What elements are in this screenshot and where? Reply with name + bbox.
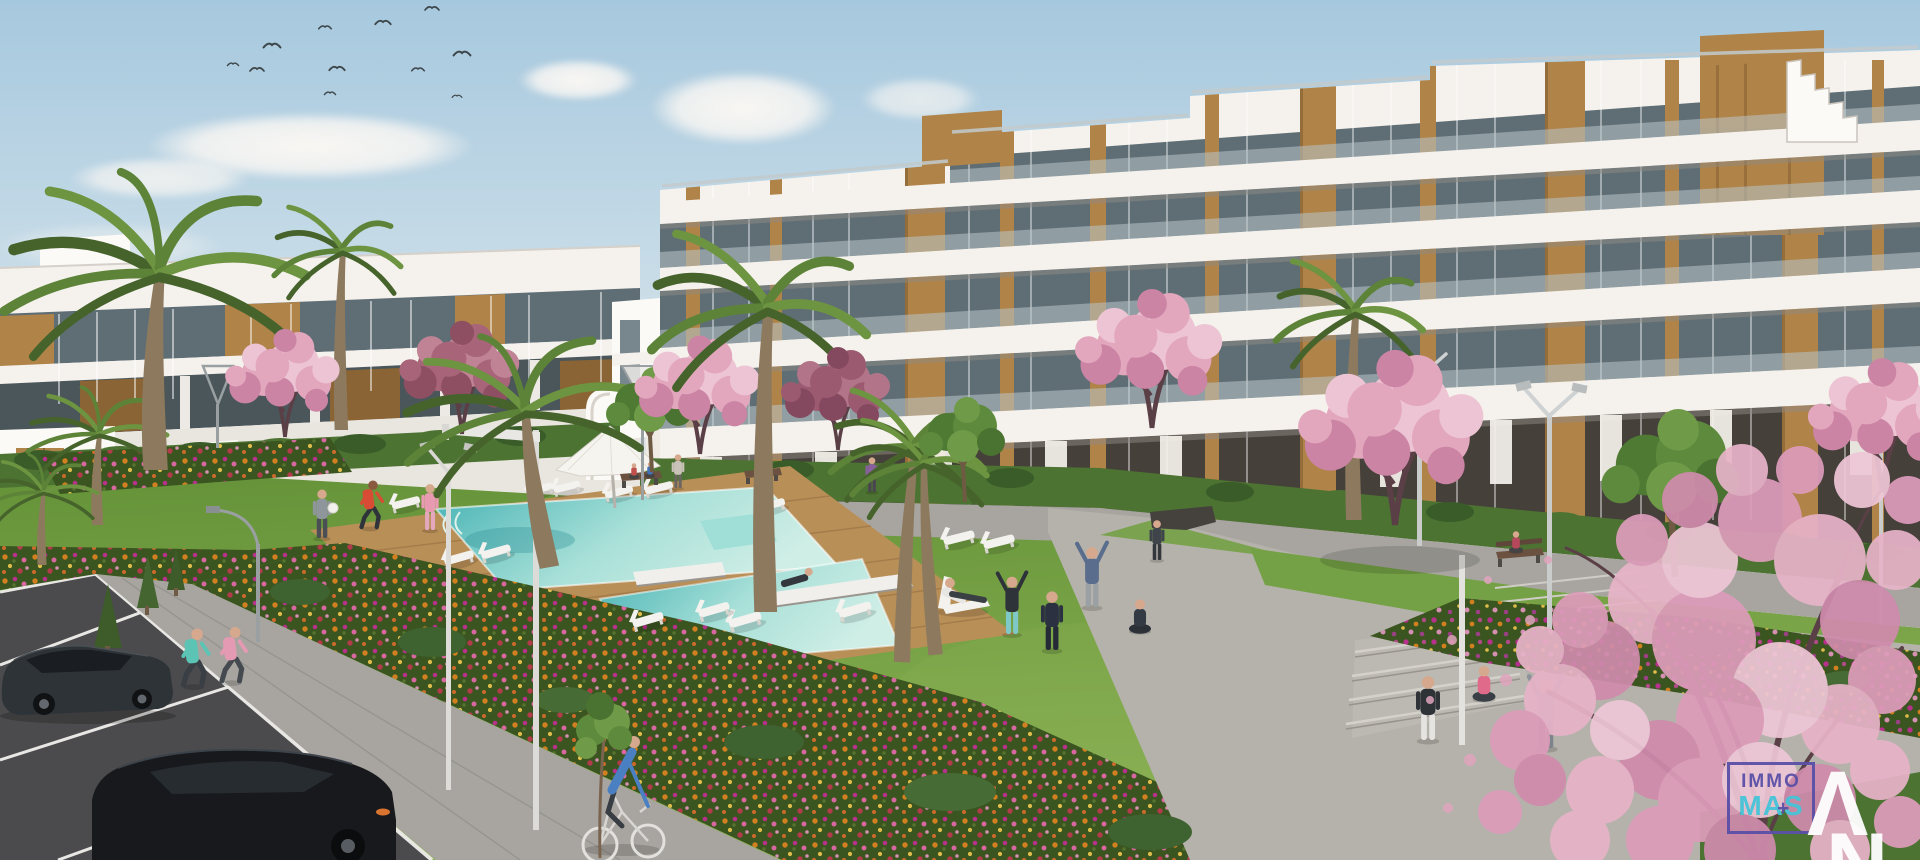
logo-plus: +	[1777, 798, 1790, 819]
logo-line1: IMMO	[1730, 772, 1812, 791]
birds-flock	[227, 7, 470, 98]
roof-wood-box	[922, 110, 1002, 168]
architectural-render: IMMO MAS+ Λ N	[0, 0, 1920, 860]
street-lamp-pole	[1459, 555, 1465, 745]
watermark-letter-bottom: N	[1826, 826, 1888, 860]
car-hatchback	[92, 750, 396, 860]
developer-watermark: IMMO MAS+ Λ N	[1727, 762, 1920, 860]
ball	[328, 503, 338, 513]
car-sedan	[0, 646, 176, 724]
logo-line2: MAS+	[1730, 791, 1812, 821]
immomas-logo: IMMO MAS+	[1727, 762, 1815, 834]
